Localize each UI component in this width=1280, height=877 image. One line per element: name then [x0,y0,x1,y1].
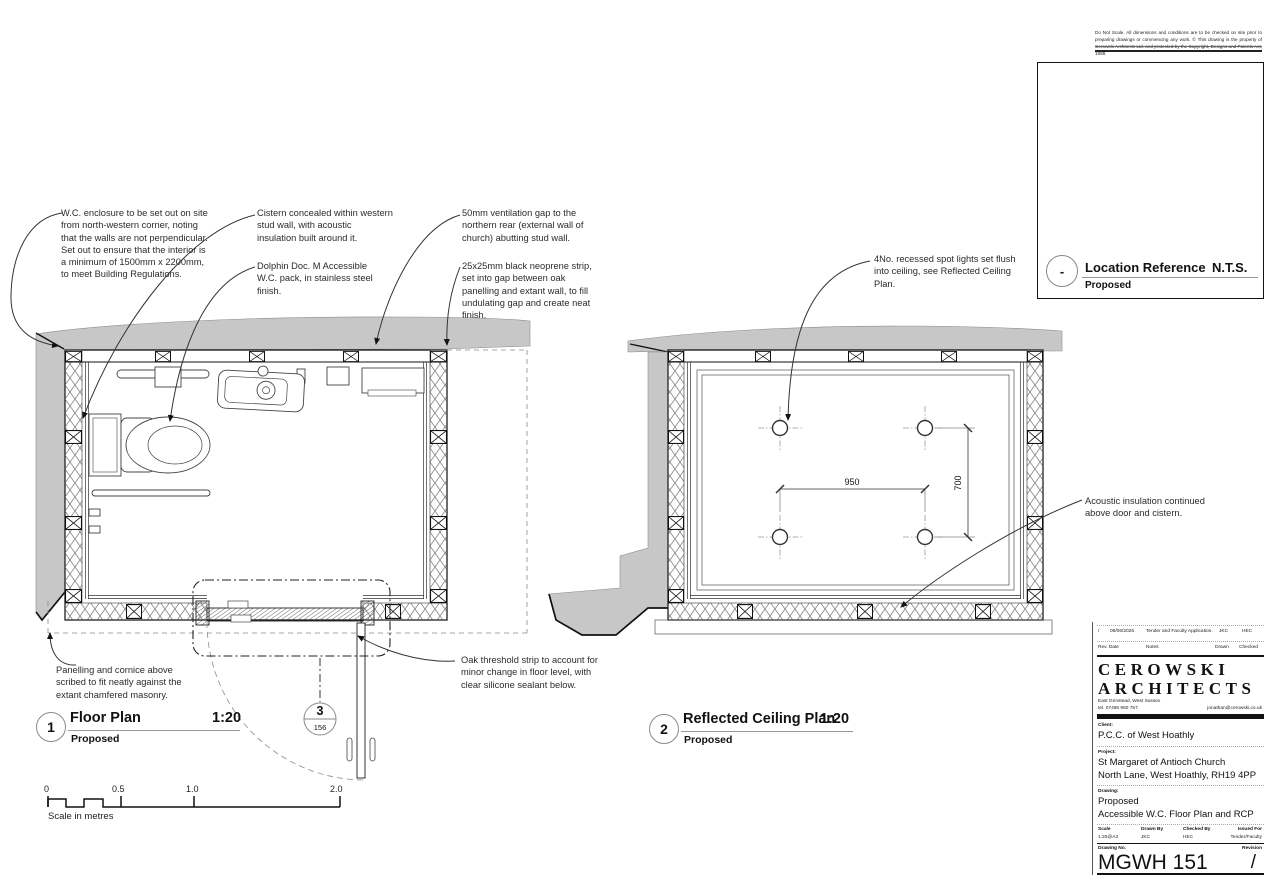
door-leaf [357,623,365,778]
rev-checked: HEC [1242,629,1252,634]
scale-caption: Scale in metres [48,811,113,822]
door-handle [347,738,352,761]
scale-label-05: 0.5 [112,784,125,794]
issued-value: Tender/Faculty [1231,835,1262,840]
location-subtitle: Proposed [1085,280,1131,291]
disclaimer-text: Do Not Scale. All dimensions and conditi… [1095,29,1262,57]
issued-label: Issued For [1238,827,1262,832]
project-line1: St Margaret of Antioch Church [1098,757,1225,768]
door-assembly: 3 156 [193,580,390,780]
rev-header-notes: Notes [1146,645,1159,650]
floor-plan-subtitle: Proposed [71,733,119,745]
note-panelling: Panelling and cornice above scribed to f… [56,664,201,701]
scale-label-20: 2.0 [330,784,343,794]
practice-email: jonathan@cerowski.co.uk [1207,706,1262,711]
scale-bar [48,796,340,807]
client-value: P.C.C. of West Hoathly [1098,730,1194,741]
floor-plan-number: 1 [36,712,66,742]
dim-label-horizontal: 950 [844,477,859,487]
rcp-number: 2 [649,714,679,744]
location-marker: - [1046,255,1078,287]
note-ventilation: 50mm ventilation gap to the northern rea… [462,207,595,244]
scale-label-tb: Scale [1098,827,1111,832]
checkedby-value: HEC [1183,835,1193,840]
section-sheet: 156 [314,723,327,732]
practice-name-line1: CEROWSKI [1098,660,1229,680]
scale-label-10: 1.0 [186,784,199,794]
drawing-number: MGWH 151 [1098,851,1208,875]
note-oak-threshold: Oak threshold strip to account for minor… [461,654,599,691]
scale-value: 1:20@A3 [1098,835,1118,840]
project-label: Project: [1098,750,1116,755]
location-scale: N.T.S. [1212,260,1247,275]
practice-address: East Grinstead, West Sussex [1098,699,1160,704]
rcp-scale: 1:20 [820,711,849,727]
section-number: 3 [317,704,324,718]
drawing-label: Drawing: [1098,789,1119,794]
note-neoprene: 25x25mm black neoprene strip, set into g… [462,260,604,321]
grab-rail [92,490,210,496]
rcp-room: 950 700 [655,350,1052,634]
rev-header-drawn: Drawn [1215,645,1229,650]
rcp-subtitle: Proposed [684,734,732,746]
floor-plan-title: Floor Plan [70,710,141,726]
drawing-line2: Accessible W.C. Floor Plan and RCP [1098,809,1254,820]
revision-value: / [1251,852,1256,874]
disclaimer-rule-thin [1095,46,1262,47]
drawnby-label: Drawn By [1141,827,1163,832]
location-title: Location Reference [1085,260,1206,275]
revision-label: Revision [1242,846,1262,851]
note-dolphin: Dolphin Doc. M Accessible W.C. pack, in … [257,260,385,297]
practice-tel: tel. 07495 960 757 [1098,706,1138,711]
rev-drawn: JKC [1219,629,1228,634]
shelf [362,368,424,393]
title-block: / 06/06/2025 Tender and Faculty Applicat… [1092,622,1264,875]
drawing-line1: Proposed [1098,796,1139,807]
rev-header-date: Rev. Date [1098,645,1119,650]
floor-plan-title-rule [68,730,240,731]
client-label: Client: [1098,723,1113,728]
checkedby-label: Checked By [1183,827,1210,832]
location-title-rule [1082,277,1258,278]
note-spotlights: 4No. recessed spot lights set flush into… [874,253,1022,290]
drawing-sheet: 3 156 [0,0,1280,877]
oak-threshold [207,608,363,621]
rcp-title-rule [681,731,853,732]
rev-value: / [1098,629,1099,634]
disclaimer-rule-thick [1095,50,1262,52]
rcp-title: Reflected Ceiling Plan [683,711,835,727]
note-cistern: Cistern concealed within western stud wa… [257,207,393,244]
door-swing-arc [207,622,365,780]
project-line2: North Lane, West Hoathly, RH19 4PP [1098,770,1256,781]
note-acoustic: Acoustic insulation continued above door… [1085,495,1227,520]
rev-date: 06/06/2025 [1110,629,1134,634]
floor-plan-scale: 1:20 [212,710,241,726]
scale-label-0: 0 [44,784,49,794]
dim-label-vertical: 700 [953,475,963,490]
rev-notes: Tender and Faculty Application. [1146,629,1213,634]
rev-header-checked: Checked [1239,645,1258,650]
practice-name-line2: ARCHITECTS [1098,679,1255,699]
drawnby-value: JKC [1141,835,1150,840]
note-wc-enclosure: W.C. enclosure to be set out on site fro… [61,207,213,281]
